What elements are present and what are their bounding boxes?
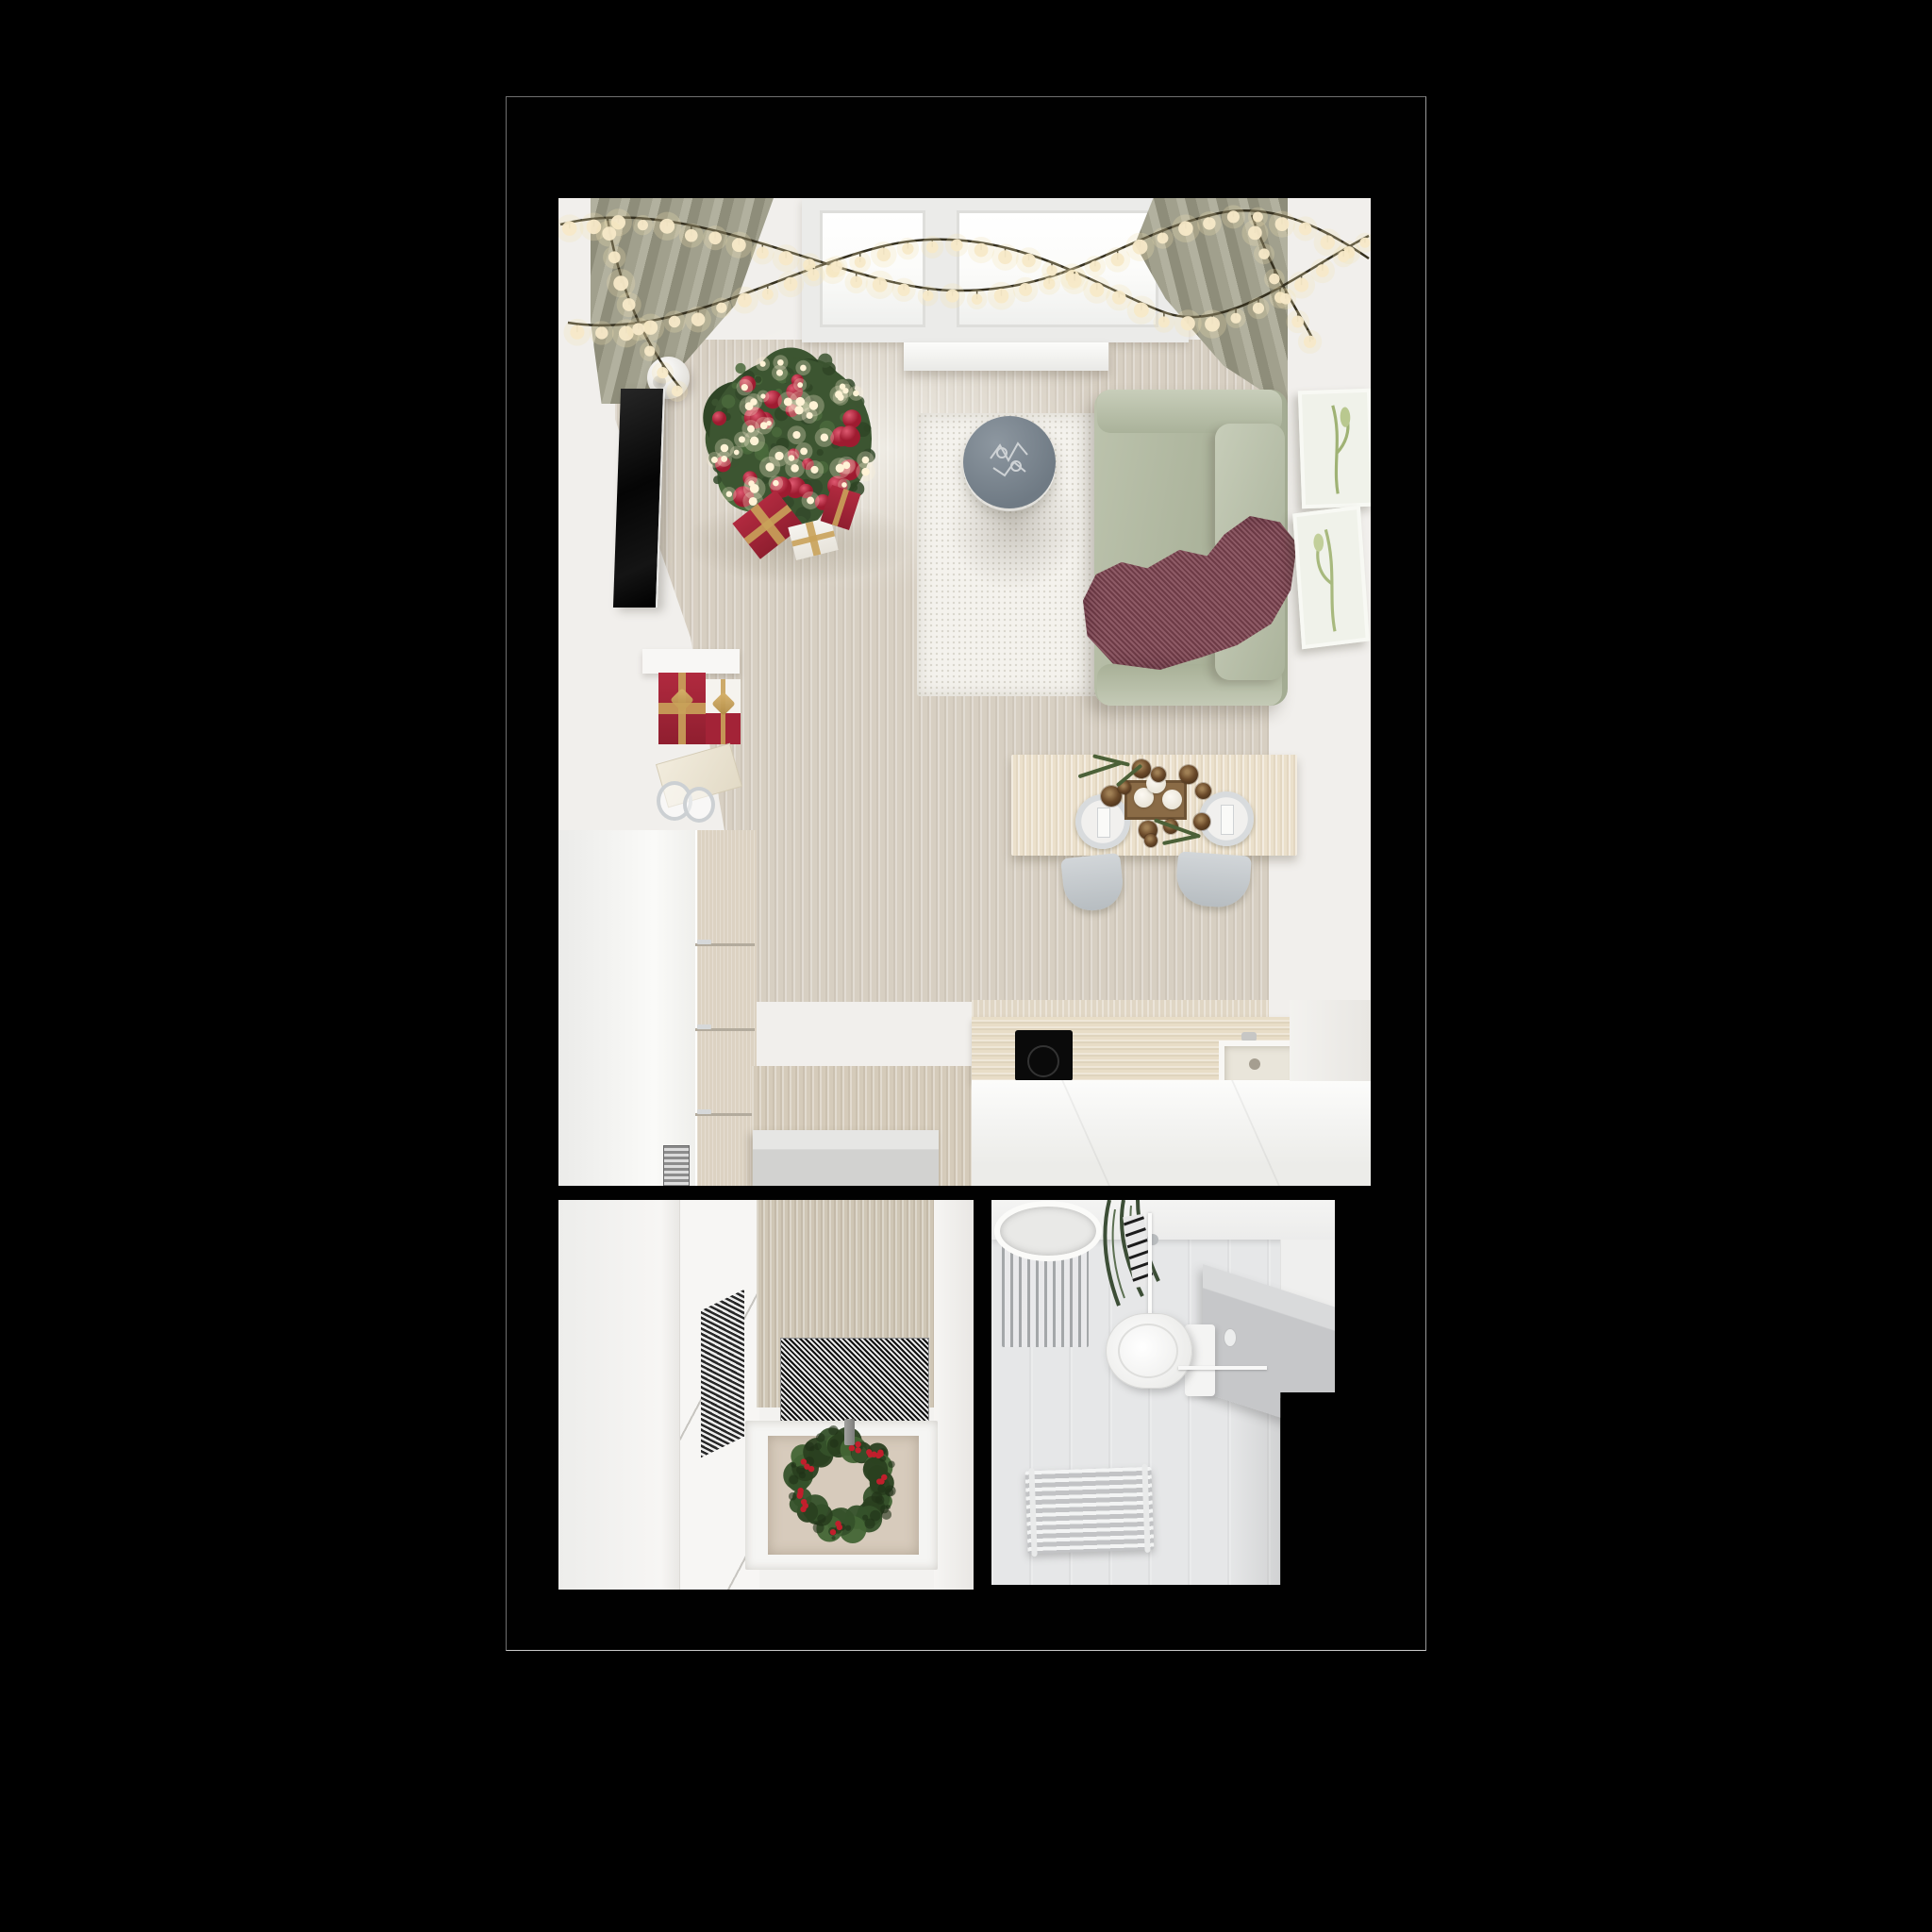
- hallway: [558, 1200, 974, 1590]
- string-lights: [558, 198, 1371, 1186]
- bathroom-corner-shadow: [1167, 1392, 1280, 1585]
- towel-radiator: [1025, 1467, 1155, 1555]
- living-room: [558, 198, 1371, 1186]
- grab-rail: [1178, 1366, 1267, 1370]
- soap-dish: [1224, 1328, 1237, 1347]
- wreath-candle: [844, 1419, 855, 1445]
- hanging-garland: [1091, 1200, 1180, 1323]
- christmas-wreath: [771, 1413, 912, 1555]
- apartment-render: [0, 0, 1932, 1932]
- door-tweed-panel: [701, 1290, 744, 1457]
- hallway-wardrobe: [558, 1200, 679, 1590]
- toilet: [1106, 1313, 1192, 1389]
- bathroom-sink: [994, 1201, 1102, 1261]
- hallway-right-wall: [934, 1200, 974, 1590]
